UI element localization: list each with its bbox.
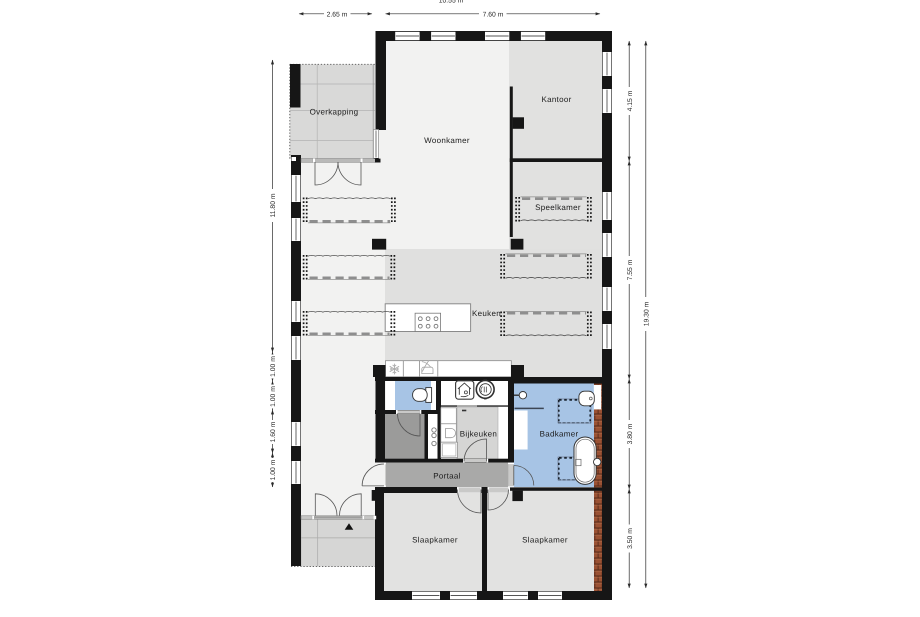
svg-text:Slaapkamer: Slaapkamer — [522, 535, 568, 544]
svg-text:Badkamer: Badkamer — [540, 429, 579, 438]
svg-text:11.80 m: 11.80 m — [270, 193, 277, 217]
svg-text:7.55 m: 7.55 m — [627, 259, 634, 280]
svg-text:7.60 m: 7.60 m — [483, 11, 504, 18]
svg-text:19.30 m: 19.30 m — [644, 301, 651, 326]
svg-text:Bijkeuken: Bijkeuken — [460, 429, 497, 438]
svg-text:Slaapkamer: Slaapkamer — [412, 535, 458, 544]
svg-text:Portaal: Portaal — [433, 471, 460, 480]
svg-text:Keuken: Keuken — [472, 309, 501, 318]
svg-text:3.50 m: 3.50 m — [627, 528, 634, 549]
svg-text:Overkapping: Overkapping — [310, 107, 359, 116]
svg-text:1.60 m: 1.60 m — [270, 421, 277, 442]
svg-text:1.00 m: 1.00 m — [270, 386, 277, 407]
svg-text:Woonkamer: Woonkamer — [424, 136, 470, 145]
svg-text:1.00 m: 1.00 m — [270, 356, 277, 377]
svg-text:Kantoor: Kantoor — [541, 95, 571, 104]
svg-text:4.15 m: 4.15 m — [627, 90, 634, 111]
svg-text:1.00 m: 1.00 m — [270, 459, 277, 480]
svg-text:2.65 m: 2.65 m — [327, 11, 348, 18]
svg-text:3.80 m: 3.80 m — [627, 423, 634, 444]
svg-text:10.55 m: 10.55 m — [439, 0, 464, 4]
svg-text:Speelkamer: Speelkamer — [535, 203, 581, 212]
